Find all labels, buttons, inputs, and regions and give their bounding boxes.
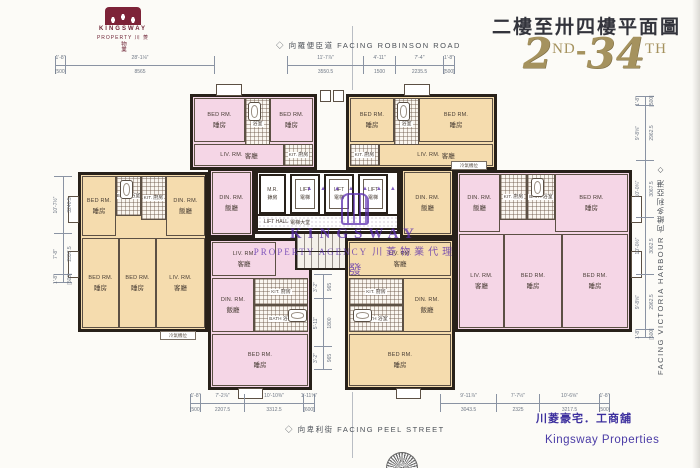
room-bedroom: BED RM. 睡房: [119, 238, 156, 328]
dimension-mm: 3062.5: [649, 238, 655, 253]
room-label-cn: 客廳: [394, 258, 407, 268]
room-label-en: BED RM.: [279, 112, 303, 118]
dimension-mm: 2337.5: [67, 246, 73, 261]
room-label-en: LIV. RM.: [169, 275, 192, 281]
dimension-segment: 7'-4"2235.5: [395, 56, 443, 74]
room-label-cn: 電梯大堂: [290, 219, 310, 226]
bay-window: [396, 388, 421, 399]
bath-chip: 浴室: [400, 121, 412, 127]
bathtub-icon: [248, 102, 261, 121]
dimension-mm: 1800: [327, 317, 333, 328]
dimension-mm: [500]: [67, 273, 73, 284]
kitchen-chip: KIT.廚房: [143, 195, 165, 201]
room-dining: DIN. RM. 飯廳: [166, 176, 205, 236]
room-label-cn: 錶房: [267, 194, 277, 201]
room-label-en: DIN. RM.: [415, 195, 439, 201]
room-label-en: KIT.: [289, 152, 298, 157]
room-label-cn: 廚房: [513, 194, 523, 200]
dimension-feet: 10'-0½": [635, 238, 641, 255]
dimension-feet: 4'-11": [373, 55, 385, 61]
title-suffix-nd: ND: [552, 41, 576, 57]
kitchen-area: KIT.廚房: [350, 144, 379, 166]
dimension-mm: [500]: [443, 69, 454, 75]
lift-car: LIFT電梯: [329, 179, 349, 209]
dimension-segment: 5'-11"1800: [314, 298, 332, 346]
dimension-segment: 7'-8"2337.5: [54, 233, 72, 274]
bathtub-icon: [288, 309, 307, 322]
dimension-mm: 3550.5: [318, 69, 333, 75]
room-bedroom: BED RM. 睡房: [562, 234, 628, 328]
title-number-34: 34: [587, 29, 645, 78]
room-bedroom: BED RM. 睡房: [419, 98, 493, 142]
ac-platform-label: 冷氣機位: [451, 161, 487, 170]
ac-platform-label: 冷氣機位: [160, 331, 196, 340]
room-living: LIV. RM. 客廳: [194, 144, 284, 166]
dimension-mm: 965: [327, 282, 333, 290]
room-label-cn: 浴室: [378, 316, 388, 322]
dimension-chain-top-center: 11'-7⅞"3550.5 4'-11"1500 7'-4"2235.5 1'-…: [287, 56, 455, 74]
room-dining: DIN. RM. 飯廳: [403, 278, 451, 332]
room-label-en: KIT.: [144, 195, 153, 200]
lift-car: LIFT電梯: [363, 179, 383, 209]
dimension-segment: 1'-8"[500]: [636, 329, 654, 338]
dimension-chain-right: 1'-8"[500] 9'-8⅝"2962.5 10'-0¾"3067.5 10…: [636, 96, 654, 338]
dimension-segment: 28'-1⅛"8565: [65, 56, 215, 74]
room-label-cn: 客廳: [245, 150, 258, 160]
dimension-segment: 1'-8"[500]: [190, 394, 200, 412]
scan-edge-shadow: [692, 0, 700, 468]
dimension-segment: 1'-8"[500]: [636, 96, 654, 105]
kitchen-area: KIT.廚房: [349, 278, 403, 305]
dimension-feet: 1'-8": [444, 55, 454, 61]
dimension-segment: 3'-2"965: [314, 274, 332, 298]
dimension-mm: 2962.5: [649, 294, 655, 309]
bay-window: [404, 84, 430, 96]
room-label-cn: 電梯: [300, 194, 310, 201]
lift-1: LIFT電梯: [290, 174, 320, 214]
room-label-en: BED RM.: [360, 112, 384, 118]
room-label-cn: 睡房: [254, 359, 267, 369]
room-label-en: DIN. RM.: [173, 198, 197, 204]
staircase: [295, 232, 347, 270]
dimension-feet: 9'-8⅝": [635, 295, 641, 309]
dimension-segment: 1'-8"[500]: [55, 56, 65, 74]
dimension-mm: 3067.5: [649, 181, 655, 196]
room-dining: DIN. RM. 飯廳: [404, 172, 451, 234]
dimension-feet: 3'-2": [313, 353, 319, 363]
dimension-mm: 2207.5: [215, 407, 230, 413]
room-dining: DIN. RM. 飯廳: [459, 174, 500, 232]
dimension-segment: 1'-8"[500]: [443, 56, 455, 74]
room-label-en: BED RM.: [125, 275, 149, 281]
room-label-cn: 飯廳: [421, 202, 434, 212]
dimension-mm: 3312.5: [266, 407, 281, 413]
room-label-en: DIN. RM.: [219, 195, 243, 201]
room-label-cn: 浴室: [543, 194, 553, 200]
room-bedroom: BED RM. 睡房: [350, 98, 394, 142]
room-label-cn: 飯廳: [421, 304, 434, 314]
room-bedroom: BED RM. 睡房: [82, 238, 119, 328]
room-label-cn: 睡房: [213, 119, 226, 129]
room-label-en: DIN. RM.: [415, 297, 439, 303]
room-label-cn: 睡房: [394, 359, 407, 369]
room-label-cn: 飯廳: [473, 202, 486, 212]
room-bedroom: BED RM. 睡房: [349, 334, 451, 386]
room-label-cn: 飯廳: [225, 202, 238, 212]
dimension-segment: 1'-8"[500]: [54, 274, 72, 283]
room-label-en: KIT.: [355, 152, 364, 157]
room-label-en: BED RM.: [248, 352, 272, 358]
room-label-cn: 客廳: [238, 258, 251, 268]
dimension-chain-bottom-left: 1'-8"[500] 7'-2⅞"2207.5 10'-10⅜"3312.5 1…: [190, 394, 315, 412]
room-label-en: BED RM.: [388, 352, 412, 358]
dimension-mm: 2325: [512, 407, 523, 413]
dimension-mm: 2235.5: [412, 69, 427, 75]
room-bedroom: BED RM. 睡房: [270, 98, 313, 142]
room-label-en: BED RM.: [88, 275, 112, 281]
dimension-feet: 9'-11⅞": [460, 393, 477, 399]
room-label-cn: 客廳: [475, 280, 488, 290]
dimension-chain-inner: 3'-2"965 5'-11"1800 3'-2"965: [314, 274, 332, 370]
room-label-cn: 睡房: [285, 119, 298, 129]
room-label-en: LIV. RM.: [389, 251, 412, 257]
dimension-feet: 7'-8": [53, 249, 59, 259]
footer-tagline: 川菱豪宅．工商舖: [536, 410, 632, 426]
title-suffix-th: TH: [645, 41, 667, 57]
dimension-chain-left: 10'-7½"3240.5 7'-8"2337.5 1'-8"[500]: [54, 176, 72, 283]
dimension-feet: 10'-7½": [53, 197, 59, 214]
dimension-feet: 7'-7½": [511, 393, 525, 399]
room-label-cn: 客廳: [442, 150, 455, 160]
dimension-mm: 965: [327, 354, 333, 362]
room-bedroom: BED RM. 睡房: [194, 98, 245, 142]
room-label-cn: 飯廳: [227, 304, 240, 314]
dimension-mm: 2962.5: [649, 125, 655, 140]
bathtub-icon: [531, 178, 544, 197]
footer-company-name: Kingsway Properties: [545, 434, 659, 446]
dimension-chain-top-left: 1'-8"[500] 28'-1⅛"8565: [55, 56, 215, 74]
room-label-cn: 廚房: [298, 152, 308, 158]
room-label-cn: 睡房: [450, 119, 463, 129]
dimension-mm: 3240.5: [67, 197, 73, 212]
kitchen-area: KIT.廚房: [500, 174, 527, 220]
room-label-en: LIFT: [334, 187, 344, 193]
room-label-en: DIN. RM.: [467, 195, 491, 201]
logo-name-line1: KINGSWAY: [85, 26, 161, 32]
room-label-cn: 廚房: [281, 289, 291, 295]
room-label-cn: 睡房: [94, 282, 107, 292]
bathtub-icon: [120, 180, 133, 199]
dimension-mm: 1500: [374, 69, 385, 75]
room-living: LIV. RM. 客廳: [459, 234, 504, 328]
kitchen-chip: KIT.廚房: [354, 152, 376, 158]
room-label-en: BED RM.: [207, 112, 231, 118]
dimension-feet: 10'-0¾": [635, 181, 641, 198]
room-label-cn: 睡房: [131, 282, 144, 292]
meter-room: M.R. 錶房: [259, 174, 286, 214]
logo-name-line2: PROPERTY 川 菱: [85, 34, 161, 41]
room-living: LIV. RM. 客廳: [156, 238, 205, 328]
room-label-en: KIT.: [366, 289, 375, 294]
dimension-feet: 7'-4": [415, 55, 425, 61]
dimension-segment: 10'-7½"3240.5: [54, 176, 72, 233]
dimension-feet: 1'-8": [191, 393, 201, 399]
room-dining: DIN. RM. 飯廳: [212, 278, 254, 332]
room-label-cn: 浴室: [401, 121, 411, 127]
dimension-mm: 3043.5: [461, 407, 476, 413]
room-label-en: BED RM.: [521, 273, 545, 279]
kitchen-chip: KIT.廚房: [288, 152, 310, 158]
room-label-en: BED RM.: [444, 112, 468, 118]
floor-plan-page: KINGSWAY PROPERTY 川 菱 物業 二樓至卅四樓平面圖 2ND-3…: [0, 0, 700, 468]
lift-car: LIFT電梯: [295, 179, 315, 209]
kitchen-area: KIT.廚房: [284, 144, 313, 166]
room-label-cn: 廚房: [376, 289, 386, 295]
room-label-cn: 客廳: [174, 282, 187, 292]
dimension-feet: 1'-8": [600, 393, 610, 399]
dimension-segment: 9'-8⅝"2962.5: [636, 105, 654, 160]
dimension-feet: 9'-8⅝": [635, 126, 641, 140]
dimension-segment: 7'-2⅞"2207.5: [200, 394, 244, 412]
facing-victoria-harbour-label: FACING VICTORIA HARBOUR 向維多利亞港 ◇: [655, 125, 666, 375]
dimension-segment: 10'-0¾"3067.5: [636, 160, 654, 217]
room-label-en: LIFT: [300, 187, 310, 193]
kitchen-chip: KIT.廚房: [365, 289, 387, 295]
dimension-segment: 11'-7⅞"3550.5: [287, 56, 363, 74]
lift-3: LIFT電梯: [358, 174, 388, 214]
room-living: LIV. RM. 客廳: [349, 242, 451, 276]
title-number-2: 2: [523, 29, 552, 78]
room-label-cn: 睡房: [93, 205, 106, 215]
room-living: LIV. RM. 客廳: [212, 242, 276, 276]
room-label-en: BATH: [269, 316, 281, 321]
room-bedroom: BED RM. 睡房: [555, 174, 628, 232]
room-label-en: LIFT: [368, 187, 378, 193]
bath-chip: 浴室: [251, 121, 263, 127]
room-label-en: BED RM.: [579, 195, 603, 201]
dimension-feet: 5'-11": [313, 316, 319, 328]
dimension-mm: [600]: [303, 407, 314, 413]
dimension-segment: 1'-11⅝"[600]: [303, 394, 315, 412]
room-label-cn: 電梯: [334, 194, 344, 201]
room-label-cn: 睡房: [366, 119, 379, 129]
kitchen-chip: KIT.廚房: [503, 194, 525, 200]
dimension-segment: 9'-11⅞"3043.5: [440, 394, 496, 412]
room-label-en: KIT.: [271, 289, 280, 294]
dimension-feet: 28'-1⅛": [132, 55, 149, 61]
room-label-en: DIN. RM.: [221, 297, 245, 303]
room-label-cn: 廚房: [153, 195, 163, 201]
dimension-feet: 3'-2": [313, 282, 319, 292]
page-title-floors: 2ND-34TH: [455, 33, 667, 75]
dimension-feet: 1'-8": [635, 329, 641, 339]
dimension-segment: 3'-2"965: [314, 346, 332, 370]
kitchen-area: KIT.廚房: [254, 278, 308, 305]
dimension-mm: [500]: [649, 328, 655, 339]
room-label-en: M.R.: [267, 187, 278, 193]
room-bedroom: BED RM. 睡房: [82, 176, 116, 236]
dimension-feet: 1'-8": [56, 55, 66, 61]
room-label-en: BED RM.: [583, 273, 607, 279]
facing-robinson-road-label: ◇ 向羅便臣道 FACING ROBINSON ROAD: [276, 40, 461, 51]
room-label-cn: 廚房: [364, 152, 374, 158]
bay-window: [333, 90, 344, 102]
room-label-cn: 浴室: [252, 121, 262, 127]
lift-hall: LIFT HALL 電梯大堂: [258, 214, 397, 230]
room-label-en: LIV. RM.: [470, 273, 493, 279]
dimension-segment: 7'-7½"2325: [496, 394, 539, 412]
kingsway-logo-icon: [105, 7, 141, 25]
fan-logo-icon: [386, 452, 418, 468]
room-label-cn: 睡房: [585, 202, 598, 212]
room-label-cn: 飯廳: [179, 205, 192, 215]
room-label-en: LIFT HALL: [264, 219, 288, 225]
dimension-segment: 9'-8⅝"2962.5: [636, 274, 654, 329]
room-label-en: KIT.: [504, 194, 513, 199]
dimension-mm: 8565: [134, 69, 145, 75]
room-label-en: LIV. RM.: [220, 152, 243, 158]
bay-window: [216, 84, 242, 96]
dimension-feet: 1'-11⅝": [301, 393, 318, 399]
dimension-feet: 11'-7⅞": [317, 55, 334, 61]
room-label-cn: 睡房: [527, 280, 540, 290]
dimension-feet: 10'-10⅜": [264, 393, 284, 399]
room-label-cn: 電梯: [368, 194, 378, 201]
bathtub-icon: [353, 309, 372, 322]
kitchen-chip: KIT.廚房: [270, 289, 292, 295]
room-bedroom: BED RM. 睡房: [212, 334, 308, 386]
kitchen-area: KIT.廚房: [141, 176, 166, 220]
title-dash: -: [576, 37, 587, 67]
dimension-segment: 10'-0½"3062.5: [636, 217, 654, 274]
room-bedroom: BED RM. 睡房: [504, 234, 562, 328]
room-label-cn: 睡房: [589, 280, 602, 290]
dimension-feet: 1'-8": [53, 274, 59, 284]
room-label-en: LIV. RM.: [417, 152, 440, 158]
lift-2: LIFT電梯: [324, 174, 354, 214]
dimension-segment: 10'-10⅜"3312.5: [244, 394, 303, 412]
room-label-en: LIV. RM.: [233, 251, 256, 257]
dimension-segment: 4'-11"1500: [363, 56, 395, 74]
facing-peel-street-label: ◇ 向卑利街 FACING PEEL STREET: [285, 424, 445, 435]
bathtub-icon: [397, 102, 410, 121]
dimension-feet: 10'-6⅝": [561, 393, 578, 399]
room-dining: DIN. RM. 飯廳: [212, 172, 251, 234]
dimension-feet: 7'-2⅞": [215, 393, 229, 399]
logo-vertical-cjk: 物業: [119, 41, 127, 52]
room-label-en: BED RM.: [87, 198, 111, 204]
bay-window: [320, 90, 331, 102]
